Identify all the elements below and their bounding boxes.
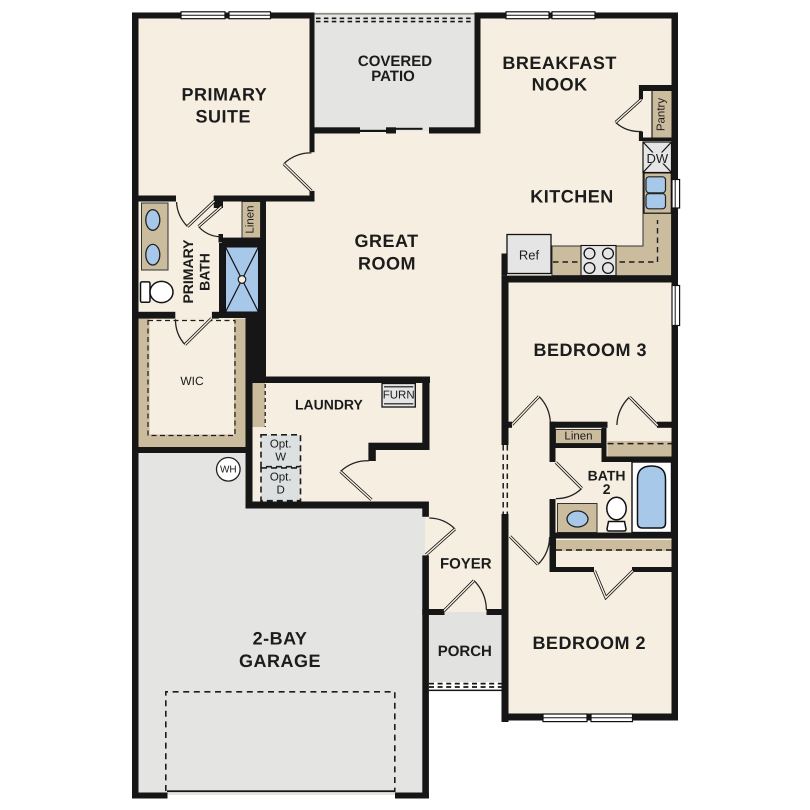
- svg-text:KITCHEN: KITCHEN: [530, 186, 614, 206]
- svg-text:ROOM: ROOM: [358, 253, 416, 273]
- svg-text:GREAT: GREAT: [355, 231, 419, 251]
- svg-text:W: W: [275, 451, 286, 463]
- svg-text:DW: DW: [646, 151, 668, 166]
- svg-text:PATIO: PATIO: [371, 68, 415, 85]
- svg-text:Pantry: Pantry: [656, 98, 668, 131]
- svg-text:GARAGE: GARAGE: [239, 651, 321, 671]
- svg-text:BATH: BATH: [197, 253, 213, 291]
- svg-text:WH: WH: [220, 464, 237, 475]
- svg-text:WIC: WIC: [180, 374, 204, 388]
- svg-text:PRIMARY: PRIMARY: [181, 85, 267, 105]
- svg-text:FOYER: FOYER: [440, 555, 492, 572]
- svg-text:PRIMARY: PRIMARY: [180, 239, 196, 304]
- svg-text:LAUNDRY: LAUNDRY: [295, 396, 364, 412]
- svg-text:BREAKFAST: BREAKFAST: [502, 53, 617, 73]
- svg-text:Ref: Ref: [519, 247, 540, 262]
- svg-text:BEDROOM 3: BEDROOM 3: [534, 340, 648, 360]
- svg-text:PORCH: PORCH: [438, 643, 492, 660]
- svg-text:BEDROOM 2: BEDROOM 2: [532, 633, 646, 653]
- svg-text:D: D: [277, 485, 285, 497]
- svg-text:NOOK: NOOK: [532, 75, 588, 95]
- svg-text:SUITE: SUITE: [195, 107, 251, 127]
- svg-text:2: 2: [603, 481, 611, 497]
- svg-text:Opt.: Opt.: [270, 472, 292, 484]
- svg-text:Linen: Linen: [564, 431, 592, 443]
- svg-text:Linen: Linen: [245, 205, 257, 233]
- svg-text:Opt.: Opt.: [270, 438, 292, 450]
- svg-text:2-BAY: 2-BAY: [253, 629, 308, 649]
- svg-text:FURN: FURN: [383, 390, 415, 402]
